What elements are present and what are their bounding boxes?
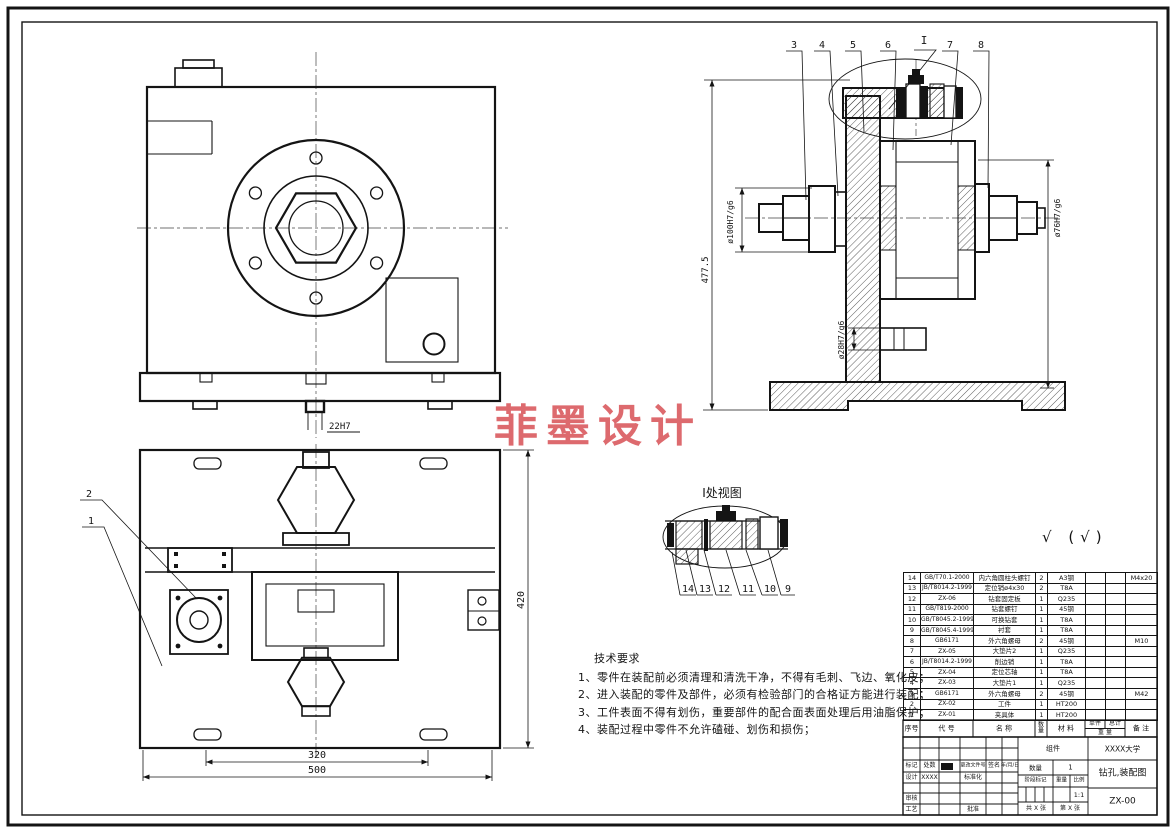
bom-cell-name: 大垫片1: [974, 678, 1036, 689]
tech-req-title: 技术要求: [594, 650, 908, 668]
bom-cell-name: 钻套螺钉: [974, 604, 1036, 615]
bom-rows: 14 GB/T70.1-2000 内六角圆柱头螺钉 2 A3钢 M4x20 13…: [904, 573, 1158, 721]
bom-cell-total-weight: [1106, 710, 1126, 721]
bom-cell-qty: 1: [1036, 678, 1048, 689]
bom-row: 9 GB/T8045.4-1999 衬套 1 T8A: [904, 625, 1158, 636]
bom-header-unit: 单件: [1089, 721, 1101, 727]
tb-scale-value: 1:1: [1074, 791, 1084, 798]
tb-drawing-title: 钻孔,装配图: [1099, 770, 1147, 779]
bom-cell-remark: [1126, 678, 1158, 689]
bom-row: 2 ZX-02 工件 1 HT200: [904, 699, 1158, 710]
bom-cell-total-weight: [1106, 636, 1126, 647]
bom-cell-material: T8A: [1048, 657, 1086, 668]
bom-cell-unit-weight: [1086, 646, 1106, 657]
bom-cell-material: 45钢: [1048, 604, 1086, 615]
bom-cell-qty: 1: [1036, 710, 1048, 721]
callout-8: 8: [978, 40, 984, 51]
tb-sheet-no: 第 X 张: [1060, 806, 1080, 812]
tb-change-file: 更改文件号: [960, 764, 985, 769]
technical-requirements: 技术要求 1、零件在装配前必须清理和清洗干净，不得有毛刺、飞边、氧化皮；2、进入…: [578, 650, 908, 739]
tb-school: XXXX大学: [1105, 745, 1141, 753]
bom-cell-remark: [1126, 583, 1158, 594]
bom-cell-code: ZX-04: [921, 667, 974, 678]
surface-finish-note: √ (√): [1042, 528, 1108, 546]
bom-cell-qty: 1: [1036, 594, 1048, 605]
tech-req-item: 1、零件在装配前必须清理和清洗干净，不得有毛刺、飞边、氧化皮；: [578, 669, 908, 687]
bom-row: 1 ZX-01 夹具体 1 HT200: [904, 710, 1158, 721]
dim-76h7: ø76H7/g6: [1053, 199, 1062, 238]
callout-11: 11: [742, 584, 754, 595]
callout-I: I: [921, 34, 928, 47]
tb-date: 年/月/日: [1001, 764, 1019, 769]
bom-cell-name: 钻套固定板: [974, 594, 1036, 605]
tb-process: 工艺: [905, 807, 917, 813]
bom-cell-total-weight: [1106, 604, 1126, 615]
bom-cell-name: 削边销: [974, 657, 1036, 668]
tech-req-list: 1、零件在装配前必须清理和清洗干净，不得有毛刺、飞边、氧化皮；2、进入装配的零件…: [578, 669, 908, 739]
callout-5: 5: [850, 40, 856, 51]
callout-13: 13: [699, 584, 711, 595]
bom-cell-no: 10: [904, 615, 921, 626]
bom-cell-unit-weight: [1086, 573, 1106, 584]
bom-cell-qty: 2: [1036, 573, 1048, 584]
bom-cell-name: 工件: [974, 699, 1036, 710]
bom-cell-code: JB/T8014.2-1999: [921, 583, 974, 594]
tb-weight-label: 重量: [1056, 778, 1067, 784]
bom-cell-remark: [1126, 625, 1158, 636]
bom-cell-remark: M42: [1126, 689, 1158, 700]
bom-cell-no: 3: [904, 689, 921, 700]
bom-cell-unit-weight: [1086, 699, 1106, 710]
tech-req-item: 3、工件表面不得有划伤，重要部件的配合面表面处理后用油脂保护；: [578, 704, 908, 722]
bom-cell-name: 可换钻套: [974, 615, 1036, 626]
front-tenon-dim: 22H7: [329, 422, 351, 432]
bom-cell-no: 7: [904, 646, 921, 657]
bom-cell-material: Q235: [1048, 678, 1086, 689]
callout-10: 10: [764, 584, 776, 595]
bom-cell-total-weight: [1106, 699, 1126, 710]
bom-cell-remark: [1126, 646, 1158, 657]
callout-12: 12: [718, 584, 730, 595]
tb-mark: 标记: [905, 763, 917, 769]
bom-cell-code: GB6171: [921, 689, 974, 700]
bom-cell-total-weight: [1106, 689, 1126, 700]
bom-cell-no: 4: [904, 678, 921, 689]
bom-cell-qty: 1: [1036, 667, 1048, 678]
bom-header-total: 总计: [1109, 721, 1121, 727]
bom-row: 14 GB/T70.1-2000 内六角圆柱头螺钉 2 A3钢 M4x20: [904, 573, 1158, 584]
bom-header-qty: 数量: [1037, 722, 1046, 735]
callout-1: 1: [88, 516, 94, 527]
bom-cell-name: 外六角螺母: [974, 689, 1036, 700]
front-view: 22H7: [140, 60, 500, 432]
callout-6: 6: [885, 40, 891, 51]
bom-header-name: 名 称: [996, 725, 1012, 732]
bom-cell-total-weight: [1106, 625, 1126, 636]
bom-cell-no: 9: [904, 625, 921, 636]
bom-cell-unit-weight: [1086, 689, 1106, 700]
bom-cell-total-weight: [1106, 667, 1126, 678]
tb-count: 处数: [923, 763, 935, 769]
dim-420: 420: [516, 591, 527, 609]
callout-14: 14: [682, 584, 694, 595]
bom-cell-material: T8A: [1048, 625, 1086, 636]
bom-row: 4 ZX-03 大垫片1 1 Q235: [904, 678, 1158, 689]
bom-cell-unit-weight: [1086, 678, 1106, 689]
tb-sign: 签名: [988, 763, 1000, 769]
bom-cell-code: ZX-03: [921, 678, 974, 689]
callout-4: 4: [819, 40, 825, 51]
bom-cell-name: 衬套: [974, 625, 1036, 636]
tb-drawing-no: ZX-00: [1109, 797, 1136, 806]
bom-cell-unit-weight: [1086, 583, 1106, 594]
bom-cell-code: ZX-01: [921, 710, 974, 721]
watermark: 菲墨设计: [494, 390, 702, 454]
bom-cell-material: Q235: [1048, 594, 1086, 605]
tb-qty-label: 数量: [1029, 764, 1042, 771]
bom-cell-unit-weight: [1086, 625, 1106, 636]
tb-standardize: 标准化: [964, 775, 982, 781]
tb-scale-label: 比例: [1073, 778, 1084, 784]
callout-7: 7: [947, 40, 953, 51]
bom-cell-unit-weight: [1086, 710, 1106, 721]
bom-cell-total-weight: [1106, 678, 1126, 689]
bom-cell-code: GB/T819-2000: [921, 604, 974, 615]
detail-title: I处视图: [702, 485, 742, 500]
bom-cell-code: GB6171: [921, 636, 974, 647]
bom-cell-remark: M10: [1126, 636, 1158, 647]
bom-cell-code: GB/T8045.2-1999: [921, 615, 974, 626]
callout-9: 9: [785, 584, 791, 595]
bom-cell-remark: [1126, 667, 1158, 678]
bom-cell-material: 45钢: [1048, 689, 1086, 700]
tb-assembly: 组件: [1046, 745, 1060, 752]
bom-cell-remark: [1126, 657, 1158, 668]
plan-dimensions: 320 500 420: [143, 450, 534, 781]
bom-cell-remark: [1126, 615, 1158, 626]
dim-500: 500: [308, 765, 326, 776]
dim-100h7: ø100H7/g6: [726, 200, 735, 244]
bom-cell-code: GB/T8045.4-1999: [921, 625, 974, 636]
bom-header-remark: 备 注: [1133, 725, 1149, 732]
bom-row: 13 JB/T8014.2-1999 定位销ø4x30 2 T8A: [904, 583, 1158, 594]
bom-cell-remark: [1126, 594, 1158, 605]
bom-cell-remark: [1126, 604, 1158, 615]
tb-sheet-total: 共 X 张: [1026, 806, 1046, 812]
bom-cell-qty: 1: [1036, 604, 1048, 615]
bom-cell-total-weight: [1106, 646, 1126, 657]
bom-cell-material: T8A: [1048, 667, 1086, 678]
bom-cell-code: ZX-05: [921, 646, 974, 657]
bom-cell-material: HT200: [1048, 710, 1086, 721]
bom-cell-name: 外六角螺母: [974, 636, 1036, 647]
bom-cell-remark: [1126, 699, 1158, 710]
tb-design: 设计: [905, 775, 917, 781]
bom-row: 8 GB6171 外六角螺母 2 45钢 M10: [904, 636, 1158, 647]
bom-cell-name: 夹具体: [974, 710, 1036, 721]
bom-cell-unit-weight: [1086, 594, 1106, 605]
bom-cell-name: 内六角圆柱头螺钉: [974, 573, 1036, 584]
bom-row: 12 ZX-06 钻套固定板 1 Q235: [904, 594, 1158, 605]
bom-cell-no: 14: [904, 573, 921, 584]
bom-cell-no: 5: [904, 667, 921, 678]
bom-cell-unit-weight: [1086, 636, 1106, 647]
bom-cell-no: 13: [904, 583, 921, 594]
plan-callouts: 2 1: [80, 489, 196, 666]
bom-cell-qty: 1: [1036, 657, 1048, 668]
dim-320: 320: [308, 750, 326, 761]
bom-header-no: 序号: [905, 725, 919, 732]
dim-477-5: 477.5: [701, 256, 711, 283]
bom-cell-total-weight: [1106, 583, 1126, 594]
bom-cell-qty: 1: [1036, 625, 1048, 636]
bom-cell-remark: M4x20: [1126, 573, 1158, 584]
callout-2: 2: [86, 489, 92, 500]
bom-cell-total-weight: [1106, 594, 1126, 605]
bom-cell-qty: 1: [1036, 615, 1048, 626]
tb-review: 审核: [905, 796, 917, 802]
tech-req-item: 4、装配过程中零件不允许磕碰、划伤和损伤；: [578, 721, 908, 739]
bom-cell-total-weight: [1106, 573, 1126, 584]
bom-cell-unit-weight: [1086, 657, 1106, 668]
bom-cell-name: 定位销ø4x30: [974, 583, 1036, 594]
bom-row: 3 GB6171 外六角螺母 2 45钢 M42: [904, 689, 1158, 700]
tb-stage-label: 阶段标记: [1024, 778, 1046, 784]
dim-28h7: ø28H7/g6: [837, 321, 846, 360]
bom-row: 10 GB/T8045.2-1999 可换钻套 1 T8A: [904, 615, 1158, 626]
section-view: [759, 59, 1065, 410]
bom-cell-material: HT200: [1048, 699, 1086, 710]
drawing-sheet: 22H7: [0, 0, 1176, 833]
bom-cell-unit-weight: [1086, 667, 1106, 678]
bom-cell-qty: 2: [1036, 636, 1048, 647]
bom-cell-material: A3钢: [1048, 573, 1086, 584]
bom-cell-unit-weight: [1086, 604, 1106, 615]
bom-cell-no: 6: [904, 657, 921, 668]
bom-cell-total-weight: [1106, 657, 1126, 668]
bom-row: 6 JB/T8014.2-1999 削边销 1 T8A: [904, 657, 1158, 668]
plan-view: [140, 450, 500, 748]
bom-cell-qty: 2: [1036, 689, 1048, 700]
bom-cell-no: 11: [904, 604, 921, 615]
bom-cell-code: JB/T8014.2-1999: [921, 657, 974, 668]
bom-table: 14 GB/T70.1-2000 内六角圆柱头螺钉 2 A3钢 M4x20 13…: [903, 572, 1158, 721]
bom-cell-no: 12: [904, 594, 921, 605]
bom-cell-qty: 2: [1036, 583, 1048, 594]
bom-row: 5 ZX-04 定位芯轴 1 T8A: [904, 667, 1158, 678]
tb-approve: 批准: [967, 807, 979, 813]
bom-cell-no: 1: [904, 710, 921, 721]
bom-row: 7 ZX-05 大垫片2 1 Q235: [904, 646, 1158, 657]
bom-cell-material: 45钢: [1048, 636, 1086, 647]
bom-cell-no: 8: [904, 636, 921, 647]
bom-row: 11 GB/T819-2000 钻套螺钉 1 45钢: [904, 604, 1158, 615]
bom-cell-material: T8A: [1048, 615, 1086, 626]
bom-cell-name: 定位芯轴: [974, 667, 1036, 678]
bom-cell-qty: 1: [1036, 646, 1048, 657]
tb-qty-value: 1: [1068, 764, 1072, 771]
tb-design-name: XXXX: [921, 775, 937, 781]
bom-cell-material: Q235: [1048, 646, 1086, 657]
bom-cell-no: 2: [904, 699, 921, 710]
bom-cell-code: ZX-06: [921, 594, 974, 605]
bom-cell-remark: [1126, 710, 1158, 721]
callout-3: 3: [791, 40, 797, 51]
bom-cell-code: ZX-02: [921, 699, 974, 710]
bom-header-material: 材 料: [1058, 725, 1074, 732]
bom-cell-material: T8A: [1048, 583, 1086, 594]
bom-header-weight: 重 量: [1098, 730, 1112, 736]
bom-cell-unit-weight: [1086, 615, 1106, 626]
bom-cell-code: GB/T70.1-2000: [921, 573, 974, 584]
bom-cell-total-weight: [1106, 615, 1126, 626]
tech-req-item: 2、进入装配的零件及部件，必须有检验部门的合格证方能进行装配；: [578, 686, 908, 704]
bom-cell-name: 大垫片2: [974, 646, 1036, 657]
bom-header-code: 代 号: [938, 725, 954, 732]
bom-cell-qty: 1: [1036, 699, 1048, 710]
